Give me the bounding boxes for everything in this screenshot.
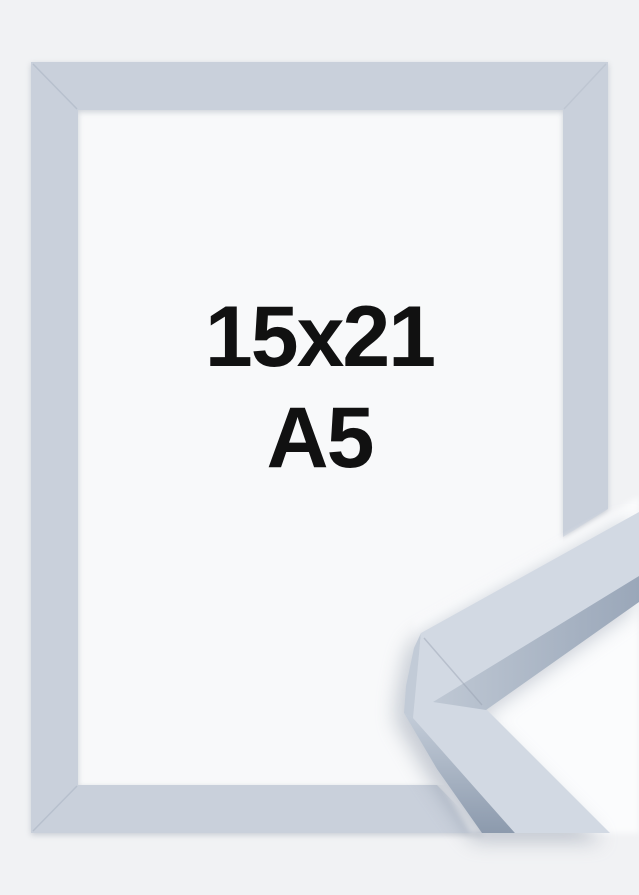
size-label-line1: 15x21: [0, 294, 639, 380]
product-image: 15x21 A5: [0, 0, 639, 895]
size-label-line2: A5: [0, 395, 639, 481]
